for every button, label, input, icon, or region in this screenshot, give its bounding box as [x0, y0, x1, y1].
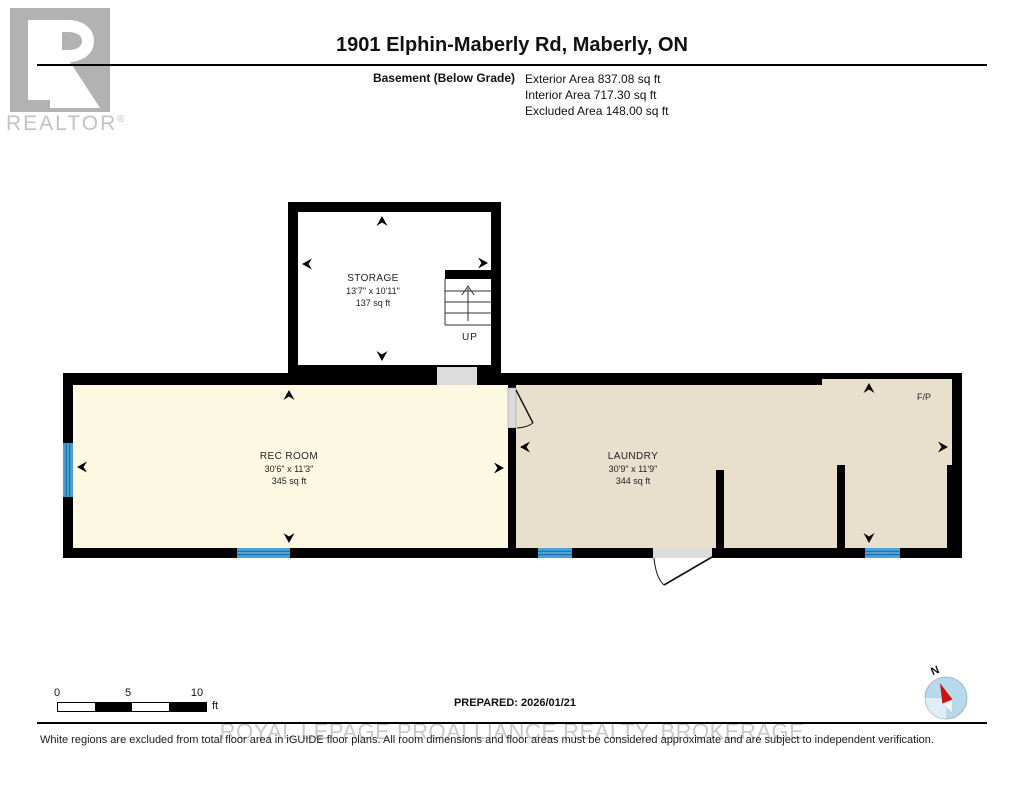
scale-segment	[132, 703, 169, 711]
room-name: REC ROOM	[209, 451, 369, 463]
exterior-door-opening	[653, 548, 712, 558]
divider-wall	[508, 428, 516, 548]
room-area: 137 sq ft	[293, 297, 453, 309]
laundry-bottom-window-1	[538, 548, 572, 558]
scale-tick-0: 0	[54, 687, 60, 699]
scale-tick-10: 10	[191, 687, 203, 699]
disclaimer-text: White regions are excluded from total fl…	[40, 734, 1024, 746]
laundry-stub-wall-2	[837, 465, 845, 548]
interior-door-leaf	[508, 388, 516, 428]
room-dimensions: 30'6" x 11'3"	[209, 463, 369, 475]
room-dimensions: 30'9" x 11'9"	[553, 463, 713, 475]
stairs-up-label: UP	[462, 332, 478, 343]
exterior-door	[653, 548, 712, 585]
scale-tick-5: 5	[125, 687, 131, 699]
fireplace-nook-floor	[822, 379, 952, 387]
laundry-stub-wall-1	[716, 470, 724, 548]
room-dimensions: 13'7" x 10'11"	[293, 285, 453, 297]
scale-segment	[95, 703, 132, 711]
storage-opening	[437, 367, 477, 385]
scale-bar: 0 5 10 ft	[57, 687, 287, 715]
rec-room-label: REC ROOM 30'6" x 11'3" 345 sq ft	[209, 451, 369, 487]
right-wall-step	[947, 465, 955, 558]
compass: N	[925, 664, 967, 719]
storage-room-label: STORAGE 13'7" x 10'11" 137 sq ft	[293, 273, 453, 309]
scale-unit: ft	[212, 700, 218, 712]
compass-north-label: N	[929, 664, 941, 678]
footer-rule	[37, 722, 987, 724]
room-name: LAUNDRY	[553, 451, 713, 463]
rec-room-left-window	[63, 443, 73, 497]
laundry-bottom-window-2	[865, 548, 900, 558]
room-area: 345 sq ft	[209, 475, 369, 487]
rec-room-bottom-window	[237, 548, 290, 558]
room-name: STORAGE	[293, 273, 453, 285]
title-rule	[37, 64, 987, 66]
laundry-room-label: LAUNDRY 30'9" x 11'9" 344 sq ft	[553, 451, 713, 487]
fireplace-label: F/P	[917, 392, 931, 402]
scale-segment	[58, 703, 95, 711]
room-area: 344 sq ft	[553, 475, 713, 487]
prepared-date: PREPARED: 2026/01/21	[365, 697, 665, 709]
floor-plan-drawing: UP	[0, 0, 1024, 791]
scale-bar-segments	[57, 702, 207, 712]
scale-segment	[169, 703, 206, 711]
floor-plan-page: REALTOR® 1901 Elphin-Maberly Rd, Maberly…	[0, 0, 1024, 791]
